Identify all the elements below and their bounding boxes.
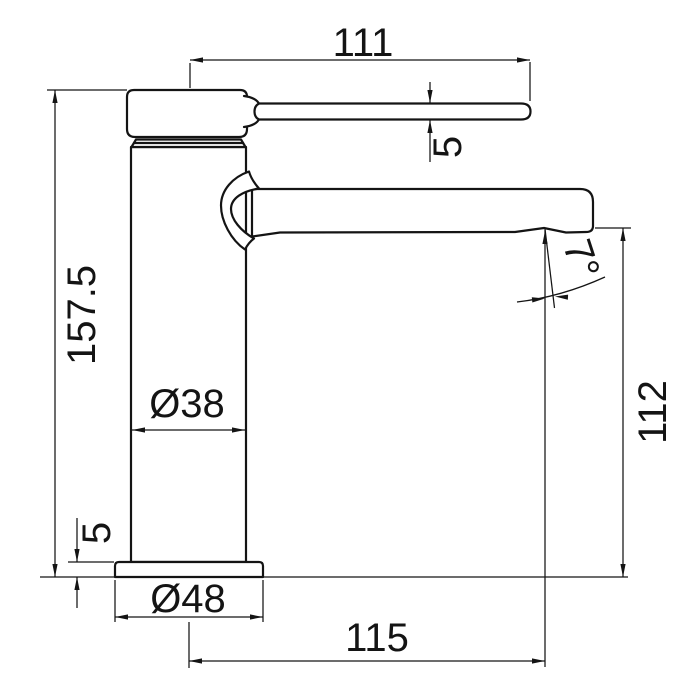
arrowhead: [427, 90, 432, 103]
dim-base-diameter-label: Ø48: [150, 577, 226, 621]
dim-handle-thickness: 5: [426, 82, 470, 162]
arrowhead: [52, 564, 57, 577]
technical-drawing-canvas: 111 5 157.5 Ø38: [0, 0, 700, 700]
handle-cap: [127, 90, 247, 137]
arrowhead: [52, 90, 57, 103]
dim-total-height: 157.5: [47, 90, 127, 577]
arrowhead: [532, 296, 545, 303]
dim-spout-angle: 7°: [517, 229, 608, 308]
arrowhead: [115, 614, 128, 619]
dim-total-height-label: 157.5: [60, 265, 104, 365]
arrowhead: [189, 658, 202, 663]
dim-body-diameter-label: Ø38: [149, 382, 225, 426]
arrowhead: [190, 57, 203, 62]
arrowhead: [532, 658, 545, 663]
dim-base-diameter: Ø48: [115, 577, 263, 622]
dim-spout-height-label: 112: [631, 380, 675, 444]
base-plate: [115, 562, 263, 577]
dim-base-height-label: 5: [75, 522, 119, 544]
dim-spout-reach-label: 115: [345, 616, 409, 660]
dim-spout-height: 112: [595, 228, 675, 577]
arrowhead: [427, 120, 432, 133]
arrowhead: [250, 614, 263, 619]
arrowhead: [74, 549, 79, 562]
spout: [252, 189, 593, 237]
arrowhead: [517, 57, 530, 62]
faucet-dimension-drawing: 111 5 157.5 Ø38: [0, 0, 700, 700]
dim-spout-angle-label: 7°: [554, 234, 608, 284]
angle-arc: [517, 277, 605, 302]
dim-handle-thickness-label: 5: [426, 136, 470, 158]
handle-lever: [259, 104, 531, 120]
handle-ball-fill: [245, 96, 261, 127]
arrowhead: [620, 228, 625, 241]
arrowhead: [620, 564, 625, 577]
faucet-outline: [40, 90, 628, 577]
arrowhead: [74, 577, 79, 590]
dim-base-height: 5: [68, 518, 119, 608]
dim-handle-length-label: 111: [333, 21, 394, 65]
